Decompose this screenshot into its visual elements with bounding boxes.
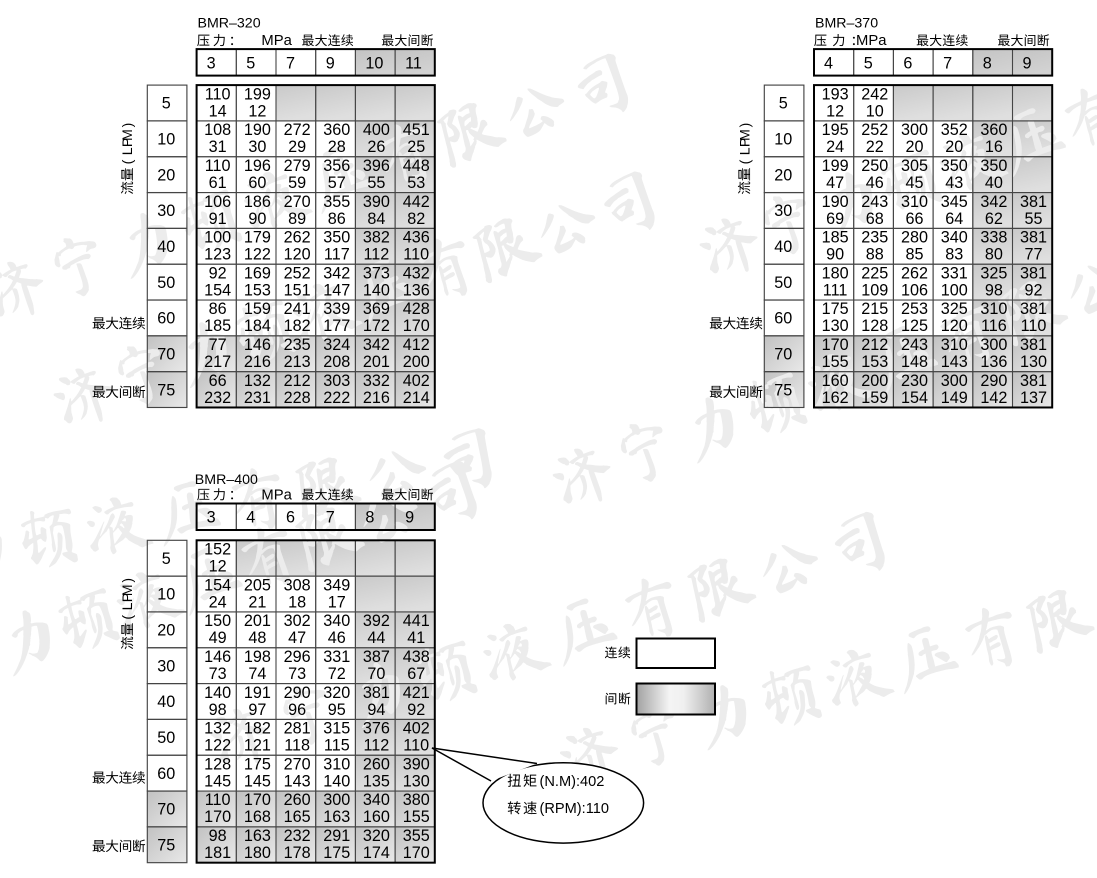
svg-text:74: 74: [248, 665, 266, 683]
svg-text:140: 140: [323, 772, 350, 790]
svg-text:222: 222: [323, 389, 350, 407]
svg-text:153: 153: [244, 281, 271, 299]
svg-text:82: 82: [407, 210, 425, 228]
svg-text:154: 154: [204, 576, 231, 594]
svg-text:44: 44: [367, 629, 385, 647]
svg-text:73: 73: [288, 665, 306, 683]
svg-text:442: 442: [403, 193, 430, 211]
svg-text:154: 154: [901, 389, 928, 407]
svg-text:342: 342: [980, 193, 1007, 211]
svg-text:150: 150: [204, 612, 231, 630]
svg-text:175: 175: [323, 844, 350, 862]
svg-text:338: 338: [980, 229, 1007, 247]
svg-text:232: 232: [204, 389, 231, 407]
svg-text:212: 212: [861, 336, 888, 354]
svg-text:432: 432: [403, 264, 430, 282]
svg-text:170: 170: [403, 844, 430, 862]
svg-text:214: 214: [403, 389, 430, 407]
svg-text:10: 10: [365, 54, 383, 72]
svg-text:83: 83: [945, 246, 963, 264]
svg-text:86: 86: [209, 300, 227, 318]
svg-text:296: 296: [284, 648, 311, 666]
svg-text:172: 172: [363, 317, 390, 335]
svg-text:109: 109: [861, 281, 888, 299]
svg-text:112: 112: [363, 737, 389, 755]
svg-text:64: 64: [945, 210, 963, 228]
svg-text:190: 190: [244, 121, 271, 139]
svg-text:110: 110: [205, 791, 231, 809]
svg-text:396: 396: [363, 157, 390, 175]
svg-text:217: 217: [204, 353, 231, 371]
svg-text:9: 9: [326, 54, 335, 72]
svg-text:350: 350: [980, 157, 1007, 175]
svg-text:11: 11: [405, 54, 422, 72]
svg-text:60: 60: [157, 765, 175, 783]
svg-text:195: 195: [822, 121, 849, 139]
svg-text:20: 20: [157, 166, 175, 184]
svg-text:300: 300: [941, 372, 968, 390]
svg-text:75: 75: [774, 381, 792, 399]
svg-text:98: 98: [209, 827, 227, 845]
svg-text:31: 31: [209, 138, 227, 156]
svg-text:160: 160: [363, 808, 390, 826]
svg-text:4: 4: [246, 509, 255, 527]
svg-text:130: 130: [822, 317, 849, 335]
svg-text:BMR–370: BMR–370: [815, 16, 878, 32]
svg-text:340: 340: [323, 612, 350, 630]
svg-text:72: 72: [328, 665, 346, 683]
svg-text:349: 349: [323, 576, 350, 594]
svg-text:193: 193: [822, 85, 849, 103]
svg-text:205: 205: [244, 576, 271, 594]
svg-text:177: 177: [323, 317, 350, 335]
svg-text:30: 30: [157, 202, 175, 220]
svg-text:448: 448: [403, 157, 430, 175]
svg-text:130: 130: [1020, 353, 1047, 371]
svg-text:5: 5: [162, 550, 171, 568]
svg-text:168: 168: [244, 808, 271, 826]
svg-text:20: 20: [774, 166, 792, 184]
svg-text:66: 66: [905, 210, 923, 228]
svg-text:155: 155: [822, 353, 849, 371]
svg-text:360: 360: [980, 121, 1007, 139]
svg-text:88: 88: [866, 246, 884, 264]
svg-text:26: 26: [367, 138, 385, 156]
svg-text:96: 96: [288, 701, 306, 719]
svg-text:70: 70: [157, 345, 175, 363]
svg-text:43: 43: [945, 174, 963, 192]
svg-text:50: 50: [157, 274, 175, 292]
svg-text:69: 69: [826, 210, 844, 228]
svg-text:10: 10: [774, 131, 792, 149]
svg-text:300: 300: [980, 336, 1007, 354]
svg-text:7: 7: [286, 54, 295, 72]
svg-text:153: 153: [861, 353, 888, 371]
svg-text:339: 339: [323, 300, 350, 318]
svg-text:5: 5: [162, 95, 171, 113]
svg-text:106: 106: [204, 193, 231, 211]
svg-text:213: 213: [284, 353, 311, 371]
svg-text:77: 77: [209, 336, 227, 354]
svg-text:143: 143: [941, 353, 968, 371]
svg-text:369: 369: [363, 300, 390, 318]
svg-text:132: 132: [244, 372, 271, 390]
svg-text:215: 215: [861, 300, 888, 318]
svg-text:61: 61: [209, 174, 227, 192]
svg-text:62: 62: [985, 210, 1003, 228]
svg-text:135: 135: [363, 772, 390, 790]
svg-text:17: 17: [328, 593, 346, 611]
svg-text:325: 325: [941, 300, 968, 318]
svg-text:228: 228: [284, 389, 311, 407]
svg-text:148: 148: [901, 353, 928, 371]
svg-text:85: 85: [905, 246, 923, 264]
svg-text:320: 320: [363, 827, 390, 845]
svg-text:70: 70: [157, 801, 175, 819]
svg-text:332: 332: [363, 372, 390, 390]
svg-text:232: 232: [284, 827, 311, 845]
svg-text:201: 201: [244, 612, 271, 630]
svg-text:41: 41: [407, 629, 425, 647]
svg-text:132: 132: [204, 720, 231, 738]
svg-text:40: 40: [985, 174, 1003, 192]
svg-text:381: 381: [1020, 264, 1047, 282]
svg-text:59: 59: [288, 174, 306, 192]
svg-text:175: 175: [244, 755, 271, 773]
svg-text:40: 40: [157, 693, 175, 711]
svg-text:302: 302: [284, 612, 311, 630]
svg-text:159: 159: [244, 300, 271, 318]
svg-text:170: 170: [244, 791, 271, 809]
svg-text:50: 50: [157, 729, 175, 747]
svg-text:122: 122: [244, 246, 271, 264]
svg-text:230: 230: [901, 372, 928, 390]
svg-text:100: 100: [204, 229, 231, 247]
svg-text:84: 84: [367, 210, 385, 228]
svg-text:6: 6: [903, 54, 912, 72]
svg-text:18: 18: [288, 593, 306, 611]
svg-text:169: 169: [244, 264, 271, 282]
svg-text:120: 120: [941, 317, 968, 335]
svg-text:308: 308: [284, 576, 311, 594]
svg-text:8: 8: [365, 509, 374, 527]
svg-text:180: 180: [822, 264, 849, 282]
svg-text:75: 75: [157, 381, 175, 399]
svg-text:421: 421: [403, 684, 430, 702]
svg-text:47: 47: [288, 629, 306, 647]
svg-text:149: 149: [941, 389, 968, 407]
svg-text:123: 123: [204, 246, 231, 264]
svg-text:3: 3: [207, 54, 216, 72]
svg-text:170: 170: [822, 336, 849, 354]
svg-text:111: 111: [823, 281, 848, 299]
svg-text:400: 400: [363, 121, 390, 139]
svg-text:29: 29: [288, 138, 306, 156]
svg-text:12: 12: [248, 102, 266, 120]
svg-text:40: 40: [774, 238, 792, 256]
svg-text:178: 178: [284, 844, 311, 862]
svg-text:303: 303: [323, 372, 350, 390]
svg-text:170: 170: [403, 317, 430, 335]
svg-text:352: 352: [941, 121, 968, 139]
svg-text:30: 30: [248, 138, 266, 156]
svg-text:280: 280: [901, 229, 928, 247]
svg-text:142: 142: [980, 389, 1007, 407]
svg-text:112: 112: [363, 246, 389, 264]
svg-text:360: 360: [323, 121, 350, 139]
svg-text:70: 70: [774, 345, 792, 363]
svg-text:90: 90: [826, 246, 844, 264]
svg-text:199: 199: [244, 85, 271, 103]
svg-text:106: 106: [901, 281, 928, 299]
svg-text:179: 179: [244, 229, 271, 247]
svg-text:155: 155: [403, 808, 430, 826]
svg-text:115: 115: [324, 737, 350, 755]
svg-text:252: 252: [284, 264, 311, 282]
svg-text:225: 225: [861, 264, 888, 282]
svg-text:46: 46: [328, 629, 346, 647]
svg-text:325: 325: [980, 264, 1007, 282]
svg-text:14: 14: [209, 102, 227, 120]
svg-text:350: 350: [323, 229, 350, 247]
svg-text:9: 9: [405, 509, 414, 527]
svg-text:145: 145: [244, 772, 271, 790]
svg-text:320: 320: [323, 684, 350, 702]
svg-text:402: 402: [403, 720, 430, 738]
svg-text:152: 152: [204, 541, 231, 559]
svg-text:381: 381: [1020, 300, 1047, 318]
svg-text:350: 350: [941, 157, 968, 175]
svg-text:310: 310: [323, 755, 350, 773]
svg-text:55: 55: [1024, 210, 1042, 228]
svg-text:331: 331: [323, 648, 350, 666]
svg-text:10: 10: [157, 586, 175, 604]
svg-text:196: 196: [244, 157, 271, 175]
svg-text:290: 290: [284, 684, 311, 702]
svg-text:12: 12: [826, 102, 844, 120]
svg-text:279: 279: [284, 157, 311, 175]
svg-text:110: 110: [205, 85, 231, 103]
svg-text:137: 137: [1020, 389, 1047, 407]
svg-text:MPa: MPa: [261, 487, 292, 503]
svg-text:68: 68: [866, 210, 884, 228]
svg-text:355: 355: [403, 827, 430, 845]
svg-text:342: 342: [363, 336, 390, 354]
svg-text:24: 24: [209, 593, 227, 611]
svg-text:122: 122: [204, 737, 231, 755]
svg-text:94: 94: [367, 701, 385, 719]
svg-text:260: 260: [363, 755, 390, 773]
svg-text:185: 185: [204, 317, 231, 335]
svg-text:174: 174: [363, 844, 390, 862]
svg-text:315: 315: [323, 720, 350, 738]
svg-text:20: 20: [905, 138, 923, 156]
svg-text:270: 270: [284, 193, 311, 211]
svg-text:212: 212: [284, 372, 311, 390]
svg-text:147: 147: [323, 281, 350, 299]
svg-text:340: 340: [941, 229, 968, 247]
svg-text:7: 7: [943, 54, 952, 72]
svg-text:25: 25: [407, 138, 425, 156]
svg-text:140: 140: [363, 281, 390, 299]
svg-text:128: 128: [204, 755, 231, 773]
svg-text:182: 182: [244, 720, 271, 738]
svg-text:92: 92: [209, 264, 227, 282]
svg-text:BMR–400: BMR–400: [195, 472, 258, 488]
svg-text:121: 121: [244, 737, 271, 755]
svg-text:390: 390: [403, 755, 430, 773]
svg-text:110: 110: [403, 737, 429, 755]
svg-text:260: 260: [284, 791, 311, 809]
svg-text:340: 340: [363, 791, 390, 809]
svg-text:441: 441: [403, 612, 430, 630]
svg-text:(N.M):402: (N.M):402: [540, 774, 605, 790]
svg-text:60: 60: [157, 310, 175, 328]
svg-text:242: 242: [861, 85, 888, 103]
svg-text:182: 182: [284, 317, 311, 335]
svg-text:235: 235: [284, 336, 311, 354]
svg-text:380: 380: [403, 791, 430, 809]
svg-text:48: 48: [248, 629, 266, 647]
svg-text:163: 163: [323, 808, 350, 826]
svg-text:118: 118: [284, 737, 310, 755]
svg-text:151: 151: [284, 281, 311, 299]
svg-text:376: 376: [363, 720, 390, 738]
svg-text:92: 92: [1024, 281, 1042, 299]
svg-text:428: 428: [403, 300, 430, 318]
svg-text:8: 8: [983, 54, 992, 72]
svg-text:80: 80: [985, 246, 1003, 264]
svg-text:162: 162: [822, 389, 849, 407]
svg-text:324: 324: [323, 336, 350, 354]
svg-text:382: 382: [363, 229, 390, 247]
svg-text:4: 4: [824, 54, 833, 72]
svg-text:67: 67: [407, 665, 425, 683]
svg-text:146: 146: [244, 336, 271, 354]
svg-text:170: 170: [204, 808, 231, 826]
svg-text:60: 60: [248, 174, 266, 192]
svg-text:47: 47: [826, 174, 844, 192]
svg-text:100: 100: [941, 281, 968, 299]
svg-text:190: 190: [822, 193, 849, 211]
svg-text:200: 200: [403, 353, 430, 371]
svg-text:MPa: MPa: [856, 33, 887, 49]
svg-text:146: 146: [204, 648, 231, 666]
svg-text:130: 130: [403, 772, 430, 790]
svg-text:198: 198: [244, 648, 271, 666]
svg-text:9: 9: [1023, 54, 1032, 72]
svg-text:10: 10: [866, 102, 884, 120]
svg-text:24: 24: [826, 138, 844, 156]
svg-text:108: 108: [204, 121, 231, 139]
svg-text:436: 436: [403, 229, 430, 247]
svg-text:16: 16: [985, 138, 1003, 156]
svg-text:216: 216: [363, 389, 390, 407]
svg-text:300: 300: [901, 121, 928, 139]
svg-text:30: 30: [157, 657, 175, 675]
svg-text:90: 90: [248, 210, 266, 228]
svg-text:57: 57: [328, 174, 346, 192]
svg-text:49: 49: [209, 629, 227, 647]
svg-text:281: 281: [284, 720, 311, 738]
svg-text:53: 53: [407, 174, 425, 192]
svg-text:86: 86: [328, 210, 346, 228]
svg-text:243: 243: [901, 336, 928, 354]
svg-text:216: 216: [244, 353, 271, 371]
svg-text:331: 331: [941, 264, 968, 282]
svg-text:272: 272: [284, 121, 311, 139]
svg-text:231: 231: [244, 389, 271, 407]
svg-text:185: 185: [822, 229, 849, 247]
svg-text:MPa: MPa: [261, 33, 292, 49]
svg-text:163: 163: [244, 827, 271, 845]
svg-text:77: 77: [1024, 246, 1042, 264]
svg-text:252: 252: [861, 121, 888, 139]
svg-text:200: 200: [861, 372, 888, 390]
svg-text:117: 117: [324, 246, 350, 264]
svg-text:235: 235: [861, 229, 888, 247]
svg-text:208: 208: [323, 353, 350, 371]
svg-text:125: 125: [901, 317, 928, 335]
svg-text:381: 381: [1020, 336, 1047, 354]
svg-text:154: 154: [204, 281, 231, 299]
svg-text:250: 250: [861, 157, 888, 175]
svg-text:73: 73: [209, 665, 227, 683]
svg-text:165: 165: [284, 808, 311, 826]
svg-text:140: 140: [204, 684, 231, 702]
svg-text:186: 186: [244, 193, 271, 211]
svg-text:356: 356: [323, 157, 350, 175]
svg-text:5: 5: [864, 54, 873, 72]
svg-text:(RPM):110: (RPM):110: [540, 801, 609, 817]
svg-text:20: 20: [157, 622, 175, 640]
svg-text:143: 143: [284, 772, 311, 790]
svg-text:46: 46: [866, 174, 884, 192]
svg-text:300: 300: [323, 791, 350, 809]
svg-text:184: 184: [244, 317, 271, 335]
svg-text:345: 345: [941, 193, 968, 211]
svg-text:402: 402: [403, 372, 430, 390]
svg-text:201: 201: [363, 353, 390, 371]
svg-text:3: 3: [207, 509, 216, 527]
svg-text:291: 291: [323, 827, 350, 845]
svg-text:5: 5: [246, 54, 255, 72]
svg-text:116: 116: [981, 317, 1007, 335]
svg-text:12: 12: [209, 558, 227, 576]
svg-text:6: 6: [286, 509, 295, 527]
svg-text:70: 70: [367, 665, 385, 683]
svg-text:451: 451: [403, 121, 430, 139]
svg-text:145: 145: [204, 772, 231, 790]
svg-text:310: 310: [980, 300, 1007, 318]
svg-text:412: 412: [403, 336, 430, 354]
svg-text:89: 89: [288, 210, 306, 228]
svg-text:381: 381: [363, 684, 390, 702]
svg-text:40: 40: [157, 238, 175, 256]
svg-text:159: 159: [861, 389, 888, 407]
svg-text:5: 5: [779, 95, 788, 113]
svg-text:110: 110: [1021, 317, 1047, 335]
svg-text:98: 98: [209, 701, 227, 719]
svg-text:355: 355: [323, 193, 350, 211]
svg-text:305: 305: [901, 157, 928, 175]
svg-text:191: 191: [244, 684, 271, 702]
svg-text:290: 290: [980, 372, 1007, 390]
svg-text:92: 92: [407, 701, 425, 719]
svg-text:387: 387: [363, 648, 390, 666]
svg-text:10: 10: [157, 131, 175, 149]
svg-text:BMR–320: BMR–320: [198, 16, 261, 32]
